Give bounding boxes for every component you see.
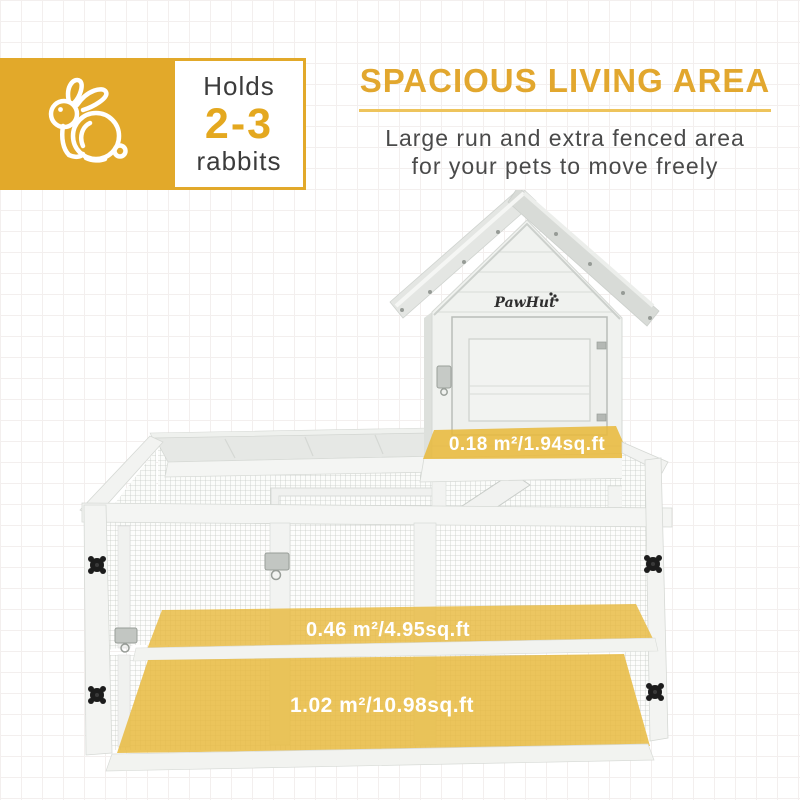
left-frame-latch: [115, 628, 137, 652]
capacity-label-bottom: rabbits: [196, 147, 281, 177]
product-infographic: Holds 2-3 rabbits SPACIOUS LIVING AREA L…: [0, 0, 800, 800]
door-hinge-top: [597, 342, 606, 349]
house-floor-label: 0.18 m²/1.94sq.ft: [449, 434, 606, 455]
subtitle-line-2: for your pets to move freely: [345, 152, 785, 180]
svg-text:PawHut: PawHut: [493, 295, 556, 311]
knob-right-top: [644, 555, 662, 573]
headline-block: SPACIOUS LIVING AREA Large run and extra…: [345, 62, 785, 180]
hutch-svg: PawHut 0.18 m²/1.9: [0, 190, 800, 800]
rabbit-badge-square: [0, 58, 172, 190]
subtitle-line-1: Large run and extra fenced area: [345, 124, 785, 152]
knob-left-bottom: [88, 686, 106, 704]
run-floor-label: 0.46 m²/4.95sq.ft: [306, 619, 470, 641]
brand-logo: PawHut: [493, 292, 558, 311]
capacity-label-top: Holds: [203, 72, 274, 102]
run-roof-panel: [150, 428, 440, 477]
total-floor-overlay: 1.02 m²/10.98sq.ft: [117, 654, 650, 753]
page-title: SPACIOUS LIVING AREA: [345, 62, 785, 100]
capacity-badge: Holds 2-3 rabbits: [172, 58, 306, 190]
rabbit-icon: [36, 74, 136, 174]
door-hinge-bottom: [597, 414, 606, 421]
total-floor-label: 1.02 m²/10.98sq.ft: [290, 694, 474, 717]
knob-right-bottom: [646, 683, 664, 701]
title-underline: [359, 109, 771, 112]
hutch-illustration: PawHut 0.18 m²/1.9: [0, 190, 800, 800]
house-floor-overlay: 0.18 m²/1.94sq.ft: [423, 426, 630, 459]
capacity-count: 2-3: [205, 103, 273, 146]
knob-left-top: [88, 556, 106, 574]
house-door: [437, 317, 607, 435]
